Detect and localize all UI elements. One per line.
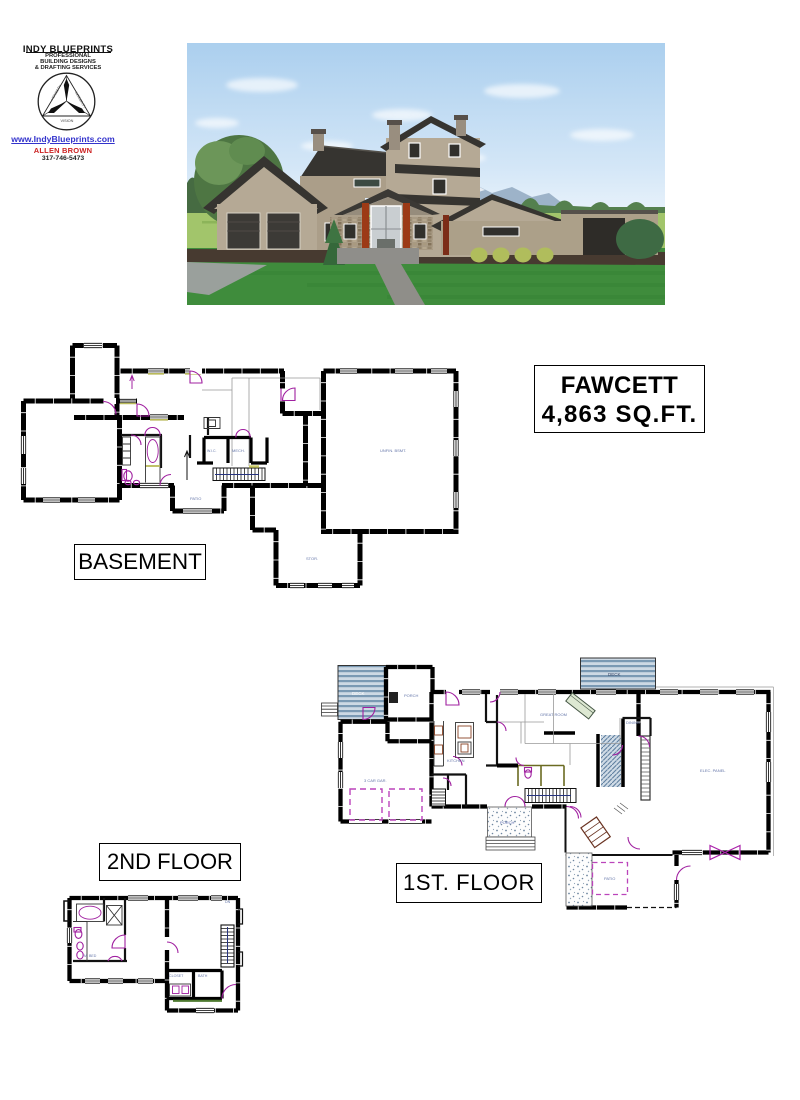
svg-text:KITCHEN: KITCHEN [447,758,465,763]
svg-text:HONESTY: HONESTY [50,84,62,101]
svg-text:3 CAR GAR.: 3 CAR GAR. [364,778,387,783]
svg-text:MECH.: MECH. [232,448,245,453]
svg-text:DN: DN [225,900,231,904]
svg-text:M. BED: M. BED [84,954,97,958]
svg-text:CLOSET: CLOSET [169,974,184,978]
svg-text:PATIO: PATIO [190,496,201,501]
svg-text:DECK: DECK [352,691,365,696]
svg-text:DINING: DINING [626,720,640,725]
svg-text:W.I.C.: W.I.C. [207,449,217,453]
svg-text:DECK: DECK [608,672,621,677]
svg-text:UNFIN. BSMT.: UNFIN. BSMT. [380,448,406,453]
svg-text:ELEC. PANEL: ELEC. PANEL [700,768,726,773]
svg-text:STOR.: STOR. [306,556,318,561]
svg-text:PATIO: PATIO [604,876,615,881]
svg-text:GREAT ROOM: GREAT ROOM [540,712,567,717]
svg-text:BATH: BATH [198,974,208,978]
svg-text:PORCH: PORCH [500,820,515,825]
svg-text:VISION: VISION [61,119,74,123]
svg-text:PORCH: PORCH [404,693,419,698]
